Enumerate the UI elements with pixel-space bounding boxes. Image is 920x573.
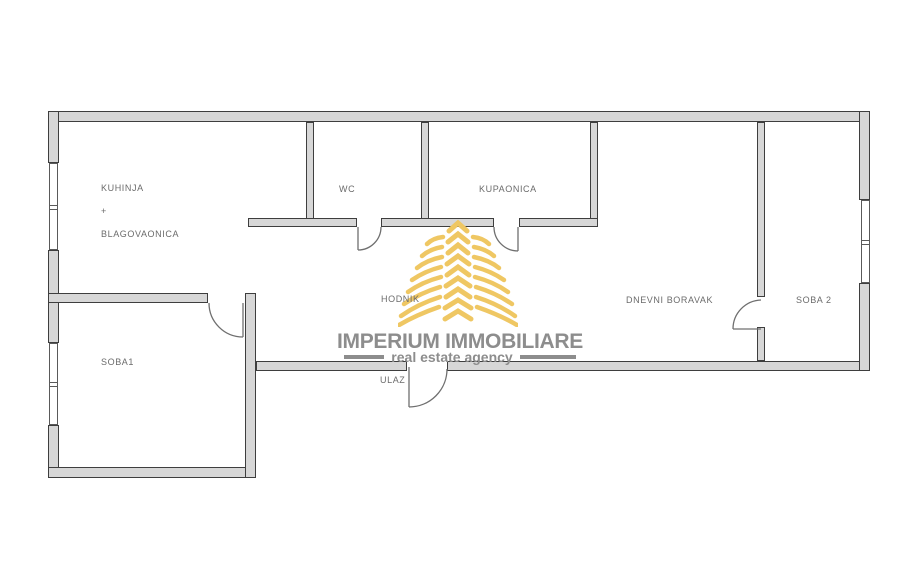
wall-outer-left-upper — [48, 111, 59, 163]
room-label-ulaz: ULAZ — [380, 375, 405, 385]
wall-outer-right-upper — [859, 111, 870, 200]
window-sash — [861, 240, 870, 245]
wall-wc-kupaonica — [421, 122, 429, 222]
door-soba1 — [209, 303, 243, 337]
window-sash — [49, 382, 58, 387]
window-kitchen — [49, 163, 58, 250]
wall-soba1-east — [245, 293, 256, 478]
wall-soba1-south — [48, 467, 256, 478]
window-soba2 — [861, 200, 870, 283]
wall-hallway-north-c — [519, 218, 598, 227]
palm-tree-logo-icon — [398, 219, 518, 327]
room-label-wc: WC — [339, 184, 355, 194]
room-label-dnevni-boravak: DNEVNI BORAVAK — [626, 295, 713, 305]
wall-hallway-north-a — [248, 218, 357, 227]
logo-subtitle-row: real estate agency — [310, 349, 610, 365]
wall-outer-right-lower — [859, 283, 870, 371]
logo-subtitle: real estate agency — [391, 349, 512, 365]
logo-subtitle-bar-left — [344, 355, 384, 359]
wall-kupaonica-east — [590, 122, 598, 227]
window-sash — [49, 205, 58, 210]
room-label-soba1: SOBA1 — [101, 357, 134, 367]
wall-outer-top — [48, 111, 870, 122]
room-label-kuhinja-plus: + — [101, 206, 107, 216]
door-wc — [358, 227, 381, 250]
wall-soba2-west-lower — [757, 327, 765, 361]
wall-kitchen-soba1 — [48, 293, 208, 303]
room-label-blagovaonica: BLAGOVAONICA — [101, 229, 179, 239]
wall-wc-west — [306, 122, 314, 222]
door-soba2 — [733, 300, 761, 329]
floor-plan-canvas: KUHINJA + BLAGOVAONICA WC KUPAONICA HODN… — [0, 0, 920, 573]
window-soba1 — [49, 343, 58, 425]
wall-soba2-west-upper — [757, 122, 765, 297]
logo-subtitle-bar-right — [520, 355, 576, 359]
door-ulaz — [409, 367, 447, 407]
room-label-kupaonica: KUPAONICA — [479, 184, 537, 194]
room-label-kuhinja: KUHINJA — [101, 183, 144, 193]
room-label-soba2: SOBA 2 — [796, 295, 832, 305]
room-label-hodnik: HODNIK — [381, 294, 420, 304]
